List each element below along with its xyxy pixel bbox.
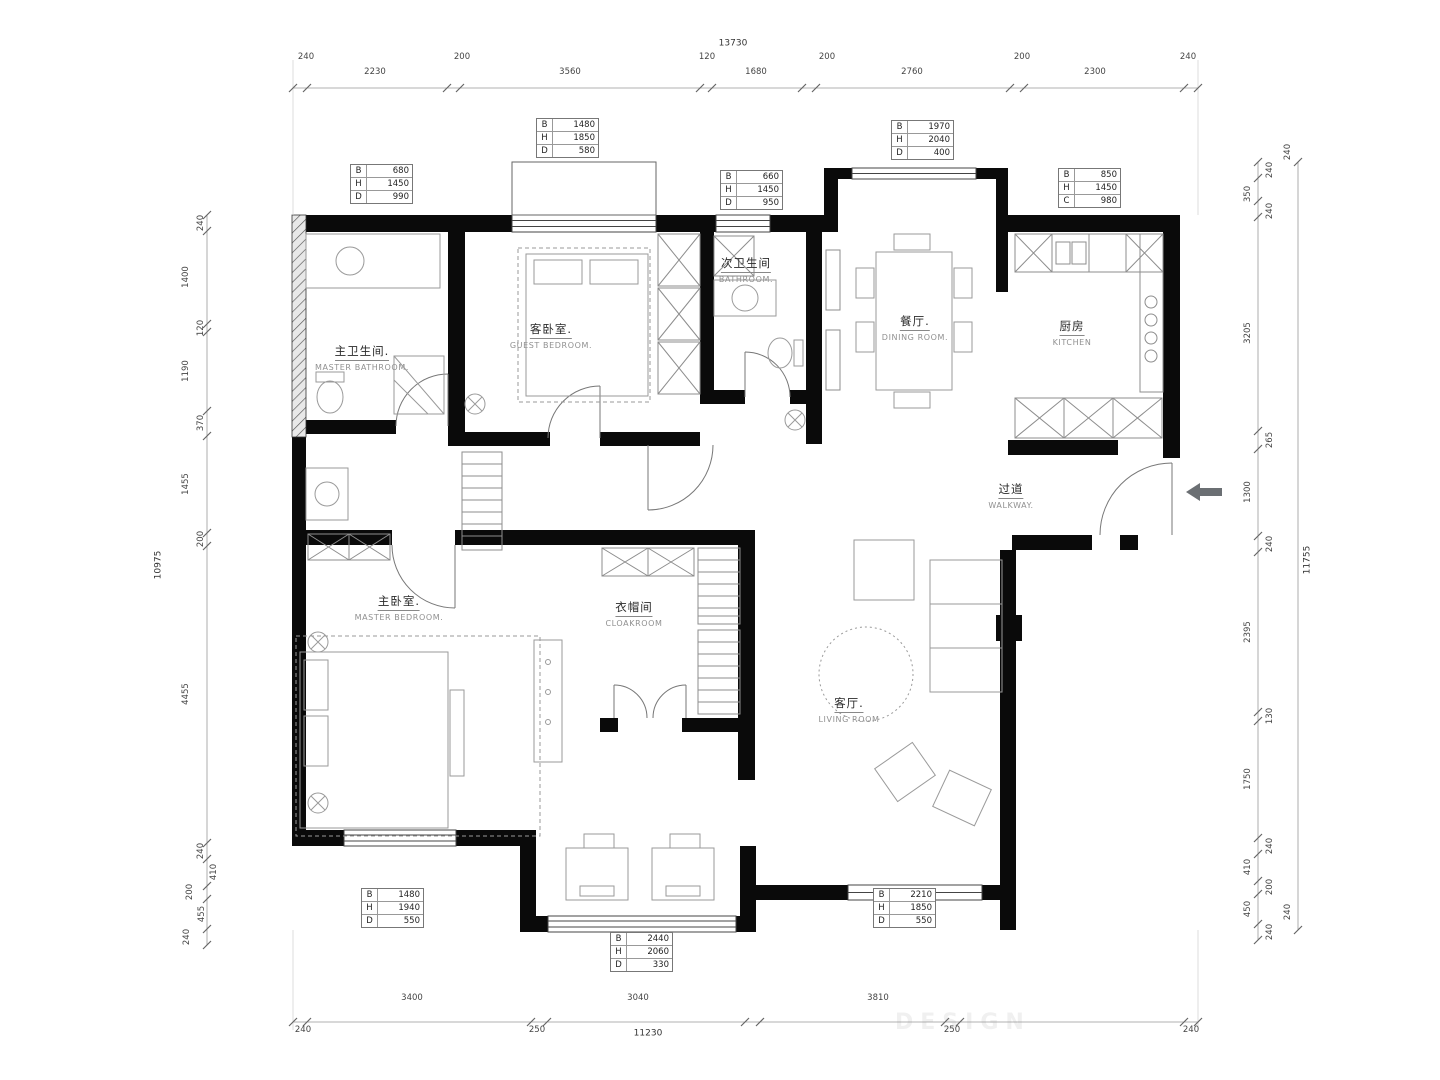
dim-label: 240 [1266,924,1275,940]
dim-label: 350 [1244,186,1253,202]
dim-label: 240 [1284,144,1293,160]
dim-label: 455 [198,906,207,922]
dim-label: 120 [197,320,206,336]
schedule-table: B660 H1450 D950 [720,170,783,210]
master-bath-fixtures [306,234,444,520]
room-name-en: DINING ROOM. [882,333,948,342]
dim-label: 240 [1266,162,1275,178]
room-name-en: CLOAKROOM [605,619,662,628]
schedule-value: 1480 [378,889,423,901]
schedule-value: 980 [1075,195,1120,207]
dim-label: 450 [1244,901,1253,917]
dim-label: 265 [1266,432,1275,448]
schedule-table: B1970 H2040 D400 [891,120,954,160]
schedule-value: 1450 [367,178,412,190]
watermark: DESIGN [895,1010,1031,1035]
schedule-key: B [1059,169,1075,181]
dim-total-top: 13730 [719,40,748,49]
schedule-key: D [892,147,908,159]
schedule-value: 1850 [890,902,935,914]
dim-label: 3560 [559,68,581,77]
dim-label: 3810 [867,994,889,1003]
schedule-value: 330 [627,959,672,971]
schedule-value: 2040 [908,134,953,146]
schedule-key: H [892,134,908,146]
dim-label: 240 [1180,53,1196,62]
bathroom-fixtures [714,280,803,368]
schedule-value: 2210 [890,889,935,901]
schedule-key: D [611,959,627,971]
room-name-en: BATHROOM. [719,275,773,284]
room-label-dining: 餐厅. DINING ROOM. [882,310,948,342]
room-label-living-room: 客厅. LIVING ROOM [818,692,879,724]
schedule-value: 990 [367,191,412,203]
dim-label: 240 [1266,838,1275,854]
dim-label: 2395 [1244,621,1253,643]
schedule-key: H [1059,182,1075,194]
dim-label: 2300 [1084,68,1106,77]
schedule-value: 1970 [908,121,953,133]
dim-label: 2760 [901,68,923,77]
dim-label: 240 [298,53,314,62]
schedule-value: 1450 [737,184,782,196]
dim-label: 240 [183,929,192,945]
schedule-value: 400 [908,147,953,159]
schedule-table: B2210 H1850 D550 [873,888,936,928]
room-name-zh: 主卧室. [378,593,420,611]
schedule-key: H [721,184,737,196]
dim-label: 240 [197,843,206,859]
schedule-table: B2440 H2060 D330 [610,932,673,972]
dim-label: 200 [1014,53,1030,62]
dim-label: 200 [1266,879,1275,895]
schedule-key: D [874,915,890,927]
schedule-value: 2440 [627,933,672,945]
room-label-guest-bedroom: 客卧室. GUEST BEDROOM. [510,318,592,350]
schedule-key: H [611,946,627,958]
cabinets [308,234,1163,714]
dim-label: 240 [295,1026,311,1035]
dim-label: 1400 [182,266,191,288]
schedule-value: 550 [890,915,935,927]
dim-label: 1190 [182,360,191,382]
room-label-bathroom: 次卫生间 BATHROOM. [719,252,773,284]
dim-label: 200 [819,53,835,62]
entry-arrow-icon [1186,483,1222,501]
schedule-value: 2060 [627,946,672,958]
schedule-value: 1940 [378,902,423,914]
schedule-key: H [874,902,890,914]
room-label-master-bedroom: 主卧室. MASTER BEDROOM. [355,590,444,622]
schedule-value: 550 [378,915,423,927]
room-name-en: MASTER BATHROOM. [315,363,409,372]
dim-label: 3205 [1244,322,1253,344]
dim-label: 3040 [627,994,649,1003]
schedule-key: H [362,902,378,914]
dim-label: 370 [197,415,206,431]
room-name-zh: 客卧室. [530,321,572,339]
dim-label: 130 [1266,708,1275,724]
schedule-key: H [351,178,367,190]
schedule-key: C [1059,195,1075,207]
room-name-zh: 主卫生间. [335,343,390,361]
dim-label: 4455 [182,683,191,705]
room-name-en: GUEST BEDROOM. [510,341,592,350]
dim-total-right: 11755 [1304,546,1313,575]
dim-total-left: 10975 [155,551,164,580]
room-name-en: WALKWAY. [988,501,1033,510]
dim-label: 240 [1284,904,1293,920]
schedule-value: 580 [553,145,598,157]
room-label-cloakroom: 衣帽间 CLOAKROOM [605,596,662,628]
schedule-key: H [537,132,553,144]
schedule-key: D [362,915,378,927]
dim-label: 1680 [745,68,767,77]
schedule-value: 1480 [553,119,598,131]
floor-plan-drawing [0,0,1440,1080]
dim-label: 240 [1266,203,1275,219]
dim-label: 410 [1244,859,1253,875]
desks [566,834,714,900]
dim-label: 1455 [182,473,191,495]
dim-label: 240 [197,215,206,231]
dim-label: 1300 [1244,481,1253,503]
schedule-key: B [537,119,553,131]
room-name-zh: 次卫生间 [721,255,771,273]
schedule-value: 850 [1075,169,1120,181]
schedule-value: 660 [737,171,782,183]
dim-label: 200 [197,531,206,547]
schedule-key: B [892,121,908,133]
schedule-table: B850 H1450 C980 [1058,168,1121,208]
room-name-en: KITCHEN [1053,338,1092,347]
dim-label: 250 [529,1026,545,1035]
dim-label: 120 [699,53,715,62]
room-name-en: MASTER BEDROOM. [355,613,444,622]
schedule-key: D [537,145,553,157]
schedule-value: 680 [367,165,412,177]
schedule-key: B [874,889,890,901]
schedule-value: 1450 [1075,182,1120,194]
schedule-key: B [362,889,378,901]
dim-label: 240 [1266,536,1275,552]
schedule-table: B680 H1450 D990 [350,164,413,204]
dim-label: 240 [1183,1026,1199,1035]
floor-plan-page: 主卫生间. MASTER BATHROOM. 客卧室. GUEST BEDROO… [0,0,1440,1080]
schedule-key: B [611,933,627,945]
schedule-key: B [721,171,737,183]
room-name-zh: 过道 [998,481,1023,499]
dim-label: 200 [186,884,195,900]
room-label-master-bathroom: 主卫生间. MASTER BATHROOM. [315,340,409,372]
schedule-key: D [351,191,367,203]
living-furniture [819,540,1002,826]
dim-label: 2230 [364,68,386,77]
dim-label: 410 [210,864,219,880]
schedule-key: D [721,197,737,209]
dim-label: 1750 [1244,768,1253,790]
room-name-zh: 厨房 [1060,318,1085,336]
room-name-zh: 衣帽间 [615,599,653,617]
room-name-zh: 客厅. [834,695,864,713]
schedule-table: B1480 H1850 D580 [536,118,599,158]
dim-label: 3400 [401,994,423,1003]
room-label-kitchen: 厨房 KITCHEN [1053,315,1092,347]
schedule-table: B1480 H1940 D550 [361,888,424,928]
hatched-wall [292,215,306,437]
room-label-walkway: 过道 WALKWAY. [988,478,1033,510]
dim-total-bottom: 11230 [634,1030,663,1039]
schedule-key: B [351,165,367,177]
master-bed [296,636,562,836]
room-name-en: LIVING ROOM [818,715,879,724]
schedule-value: 950 [737,197,782,209]
schedule-value: 1850 [553,132,598,144]
dim-label: 200 [454,53,470,62]
room-name-zh: 餐厅. [900,313,930,331]
